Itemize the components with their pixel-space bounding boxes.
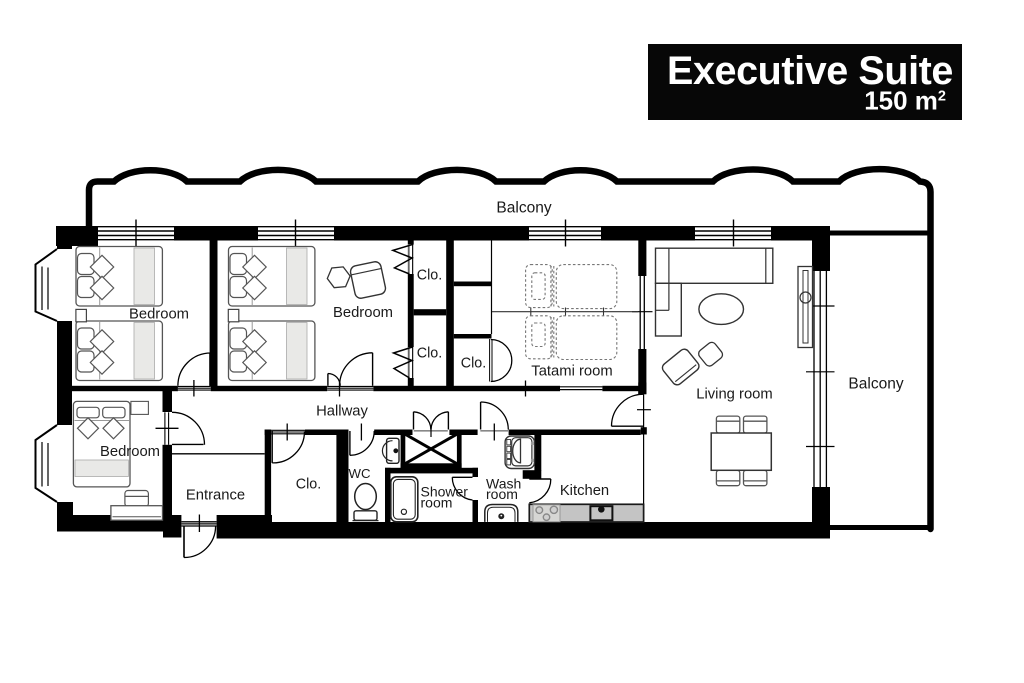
svg-text:Bedroom: Bedroom (100, 444, 160, 460)
svg-text:Balcony: Balcony (496, 200, 551, 217)
svg-text:Tatami room: Tatami room (531, 364, 612, 380)
svg-text:Kitchen: Kitchen (560, 483, 609, 499)
svg-text:Clo.: Clo. (296, 477, 321, 493)
svg-text:Bedroom: Bedroom (129, 307, 189, 323)
svg-text:Bedroom: Bedroom (333, 305, 393, 321)
svg-text:Hallway: Hallway (316, 404, 368, 420)
svg-text:room: room (486, 486, 518, 502)
svg-text:Clo.: Clo. (417, 346, 442, 362)
svg-text:Living room: Living room (696, 387, 772, 403)
svg-text:WC: WC (349, 466, 371, 481)
svg-text:Clo.: Clo. (417, 268, 442, 284)
svg-text:Clo.: Clo. (461, 356, 486, 372)
svg-text:room: room (421, 495, 453, 511)
svg-text:Entrance: Entrance (186, 488, 245, 504)
svg-text:Balcony: Balcony (848, 376, 903, 393)
svg-text:150 m2: 150 m2 (864, 86, 946, 116)
